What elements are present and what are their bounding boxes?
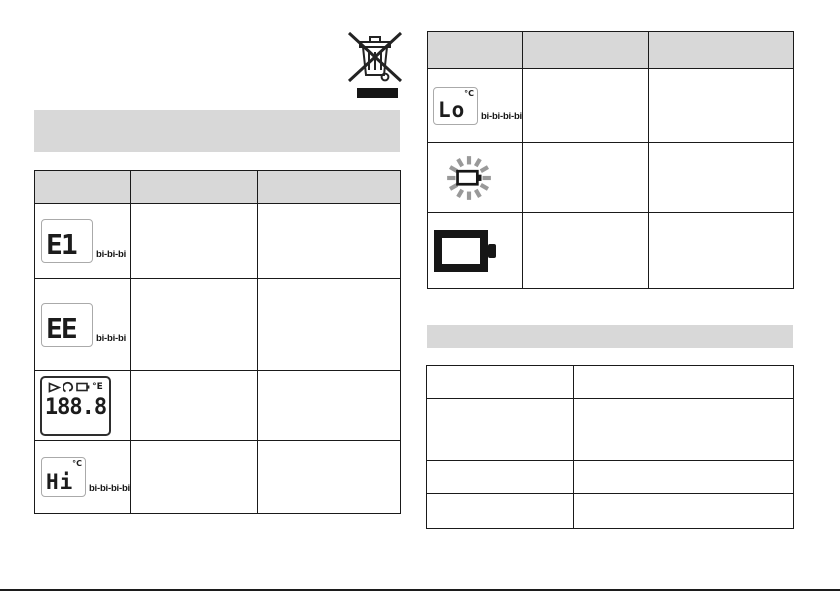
weee-crossed-bin-icon — [346, 26, 404, 100]
lcd-text: Hi — [46, 472, 73, 493]
table-row: °C Hi bi-bi-bi-bi — [35, 441, 401, 514]
table-cell — [523, 213, 649, 289]
table-cell — [258, 279, 401, 371]
table-cell — [427, 399, 574, 461]
beep-label: bi-bi-bi — [96, 249, 126, 263]
table-cell — [574, 366, 794, 399]
table-row — [428, 213, 794, 289]
celsius-label: °C — [72, 459, 82, 468]
table-header-row — [428, 32, 794, 69]
lcd-display-ee: EE — [41, 303, 93, 347]
battery-empty-icon — [434, 230, 498, 272]
table-cell — [574, 494, 794, 529]
lcd-cell: E1 bi-bi-bi — [35, 204, 131, 279]
header-cell — [428, 32, 523, 69]
battery-blinking-icon — [444, 153, 494, 203]
manual-page: E1 bi-bi-bi EE bi-bi-bi — [0, 0, 840, 596]
header-cell — [523, 32, 649, 69]
lcd-display-hi: °C Hi — [41, 457, 86, 497]
table-cell — [258, 204, 401, 279]
table-cell — [649, 143, 794, 213]
table-row: E1 bi-bi-bi — [35, 204, 401, 279]
table-cell — [131, 441, 258, 514]
error-code-table: E1 bi-bi-bi EE bi-bi-bi — [34, 170, 401, 514]
beep-label: bi-bi-bi-bi — [89, 483, 130, 497]
table-row — [427, 399, 794, 461]
weee-black-bar — [357, 88, 398, 98]
lcd-status-icons: °E — [48, 381, 103, 394]
table-cell — [427, 494, 574, 529]
lcd-text: EE — [46, 315, 76, 343]
table-row: EE bi-bi-bi — [35, 279, 401, 371]
table-cell — [574, 399, 794, 461]
lcd-cell: °C Lo bi-bi-bi-bi — [428, 69, 523, 143]
speaker-triangle-icon — [48, 382, 61, 393]
lcd-display-e1: E1 — [41, 219, 93, 263]
table-cell — [523, 143, 649, 213]
header-cell — [649, 32, 794, 69]
table-cell — [649, 213, 794, 289]
section-header-right — [427, 325, 793, 348]
table-cell — [523, 69, 649, 143]
lcd-text: 188.8 — [45, 397, 106, 419]
celsius-label: °C — [464, 89, 474, 98]
header-cell — [131, 171, 258, 204]
battery-small-icon — [76, 382, 90, 392]
lcd-cell: EE bi-bi-bi — [35, 279, 131, 371]
unit-label: °E — [92, 383, 103, 392]
table-cell — [131, 279, 258, 371]
header-cell — [258, 171, 401, 204]
table-cell — [574, 461, 794, 494]
table-cell — [258, 371, 401, 441]
lcd-cell: °C Hi bi-bi-bi-bi — [35, 441, 131, 514]
icon-cell — [428, 143, 523, 213]
table-cell — [649, 69, 794, 143]
table-row — [427, 366, 794, 399]
warning-table: °C Lo bi-bi-bi-bi — [427, 31, 794, 289]
table-cell — [131, 204, 258, 279]
page-bottom-rule — [0, 589, 840, 591]
header-cell — [35, 171, 131, 204]
section-header-left — [34, 110, 400, 152]
table-row — [427, 494, 794, 529]
beep-label: bi-bi-bi-bi — [481, 111, 522, 125]
ear-icon — [63, 381, 74, 393]
lcd-display-lo: °C Lo — [433, 87, 478, 125]
table-header-row — [35, 171, 401, 204]
table-row: °C Lo bi-bi-bi-bi — [428, 69, 794, 143]
table-cell — [258, 441, 401, 514]
table-row — [428, 143, 794, 213]
table-row — [427, 461, 794, 494]
table-row: °E 188.8 — [35, 371, 401, 441]
table-cell — [427, 366, 574, 399]
beep-label: bi-bi-bi — [96, 333, 126, 347]
table-cell — [131, 371, 258, 441]
spec-table — [426, 365, 794, 529]
lcd-text: E1 — [46, 231, 76, 259]
lcd-cell: °E 188.8 — [35, 371, 131, 441]
lcd-display-full: °E 188.8 — [40, 376, 111, 436]
table-cell — [427, 461, 574, 494]
icon-cell — [428, 213, 523, 289]
lcd-text: Lo — [438, 100, 465, 121]
